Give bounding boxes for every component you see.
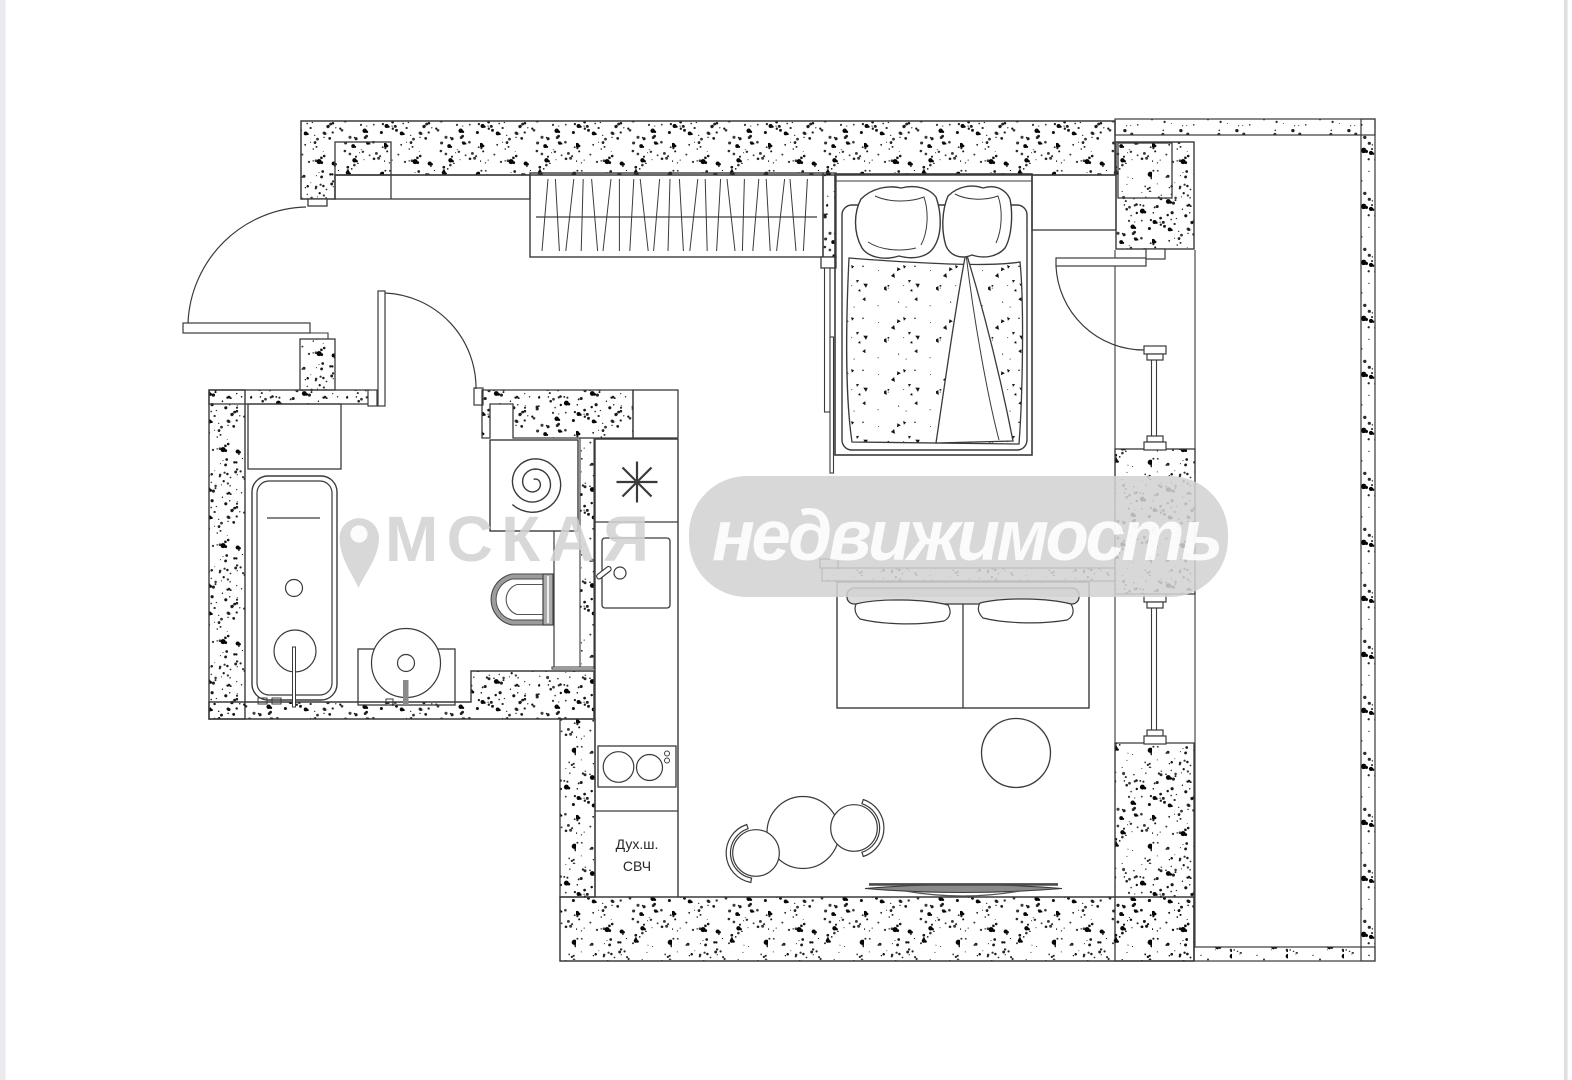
svg-text:Дух.ш.: Дух.ш. — [616, 836, 659, 852]
svg-text:недвижимость: недвижимость — [712, 497, 1220, 576]
svg-text:МСКАЯ: МСКАЯ — [385, 503, 657, 575]
svg-text:СВЧ: СВЧ — [623, 858, 651, 874]
